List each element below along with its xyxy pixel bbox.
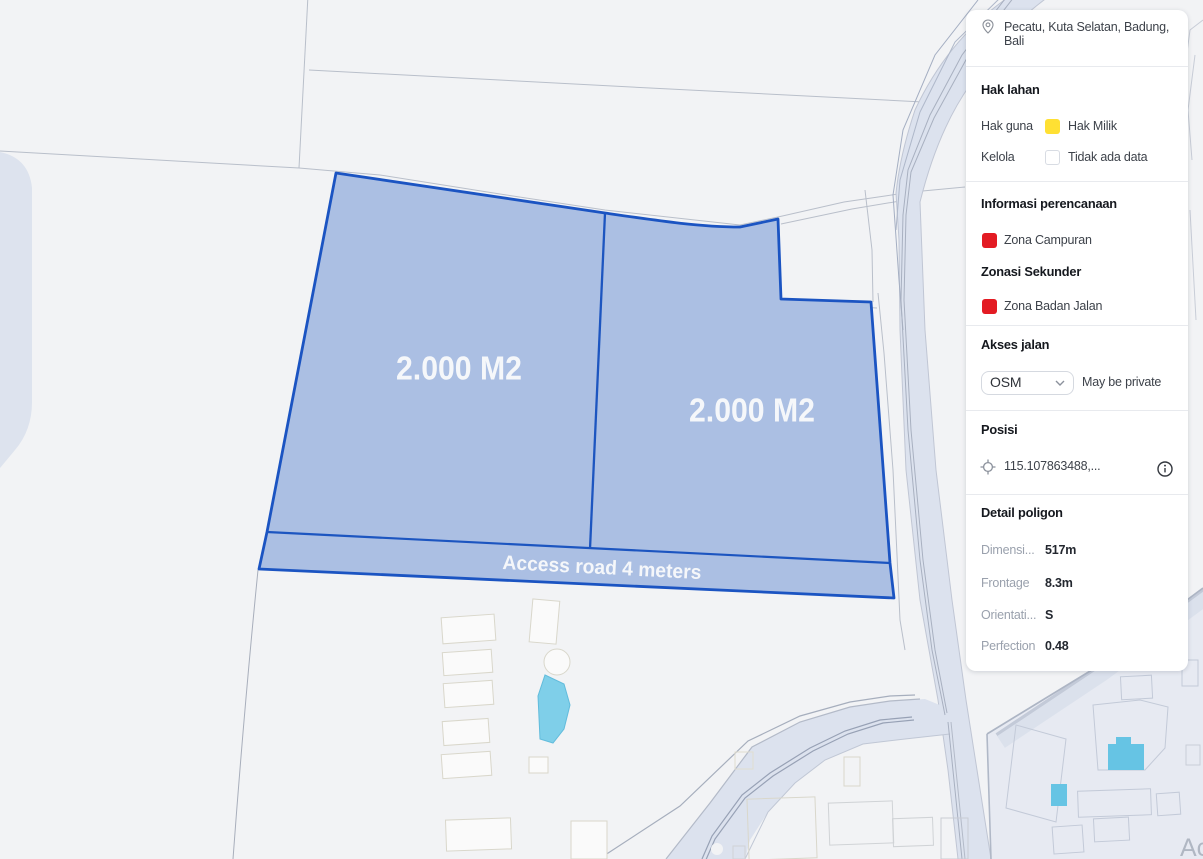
svg-text:2.000 M2: 2.000 M2 xyxy=(689,393,815,430)
svg-text:2.000 M2: 2.000 M2 xyxy=(396,351,522,388)
svg-text:Ac: Ac xyxy=(1180,834,1203,859)
